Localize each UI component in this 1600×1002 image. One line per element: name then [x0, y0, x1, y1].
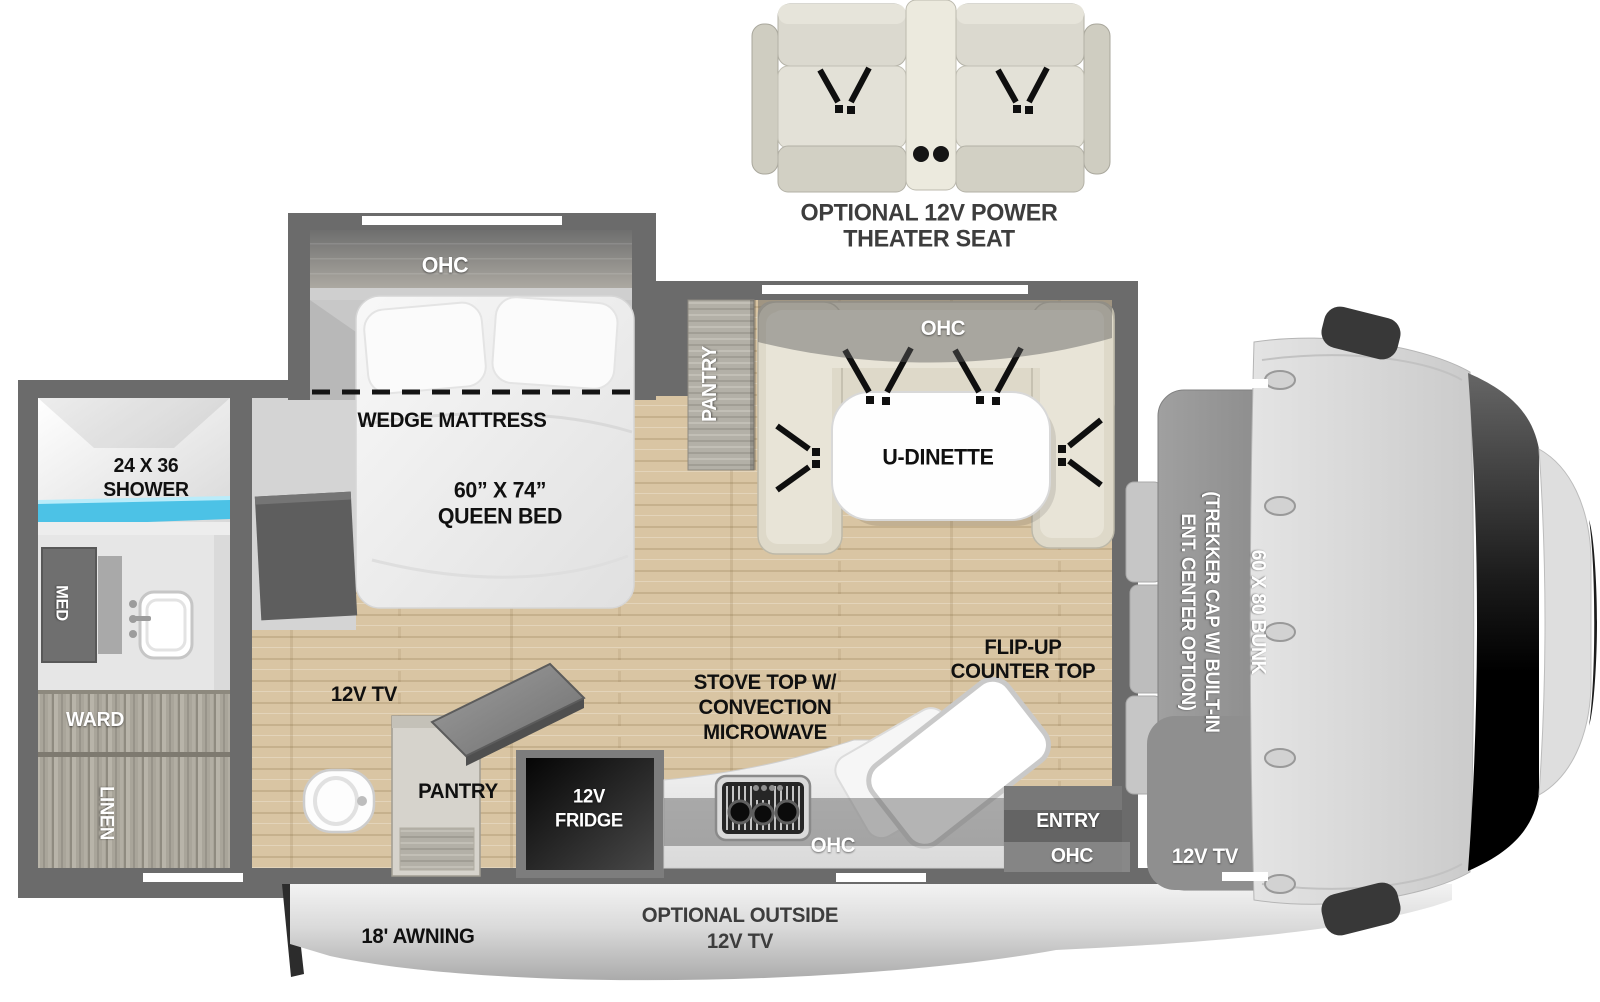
stove-label-line2: CONVECTION	[699, 696, 832, 720]
linen-label: LINEN	[95, 786, 116, 840]
bunk-label: 60 X 80 BUNK	[1247, 550, 1269, 675]
bedroom-dresser	[255, 492, 357, 621]
cab-hood	[1250, 338, 1474, 904]
cupholder-icon	[933, 146, 949, 162]
flip-up-counter-label-line1: FLIP-UP	[984, 636, 1061, 660]
trekker-cap-label: (TREKKER CAP W/ BUILT-IN ENT. CENTER OPT…	[1175, 491, 1223, 732]
stove-label-line1: STOVE TOP W/	[694, 671, 837, 695]
theater-seat-label-line2: THEATER SEAT	[843, 227, 1015, 254]
bedroom-ohc-cabinet	[310, 230, 632, 300]
awning-label: 18' AWNING	[361, 925, 474, 949]
u-dinette-label: U-DINETTE	[882, 446, 993, 471]
dinette-ohc-label: OHC	[921, 317, 965, 341]
outside-tv-label-line2: 12V TV	[707, 930, 773, 954]
pillow	[491, 296, 619, 390]
shower-label-line2: SHOWER	[103, 479, 189, 501]
dinette-pantry-label: PANTRY	[699, 346, 721, 422]
bedroom-tv-label: 12V TV	[331, 683, 397, 707]
dinette-window	[762, 285, 1028, 294]
bedroom-ohc-label: OHC	[422, 254, 469, 279]
queen-bed-label-line2: QUEEN BED	[438, 505, 562, 530]
kitchen-window	[836, 873, 926, 882]
stove-label-line3: MICROWAVE	[703, 721, 827, 745]
pillow	[363, 301, 488, 395]
rv-floorplan: OPTIONAL 12V POWER THEATER SEAT OHC WEDG…	[0, 0, 1600, 1002]
cupholder-icon	[913, 146, 929, 162]
bedroom-window	[362, 216, 562, 225]
shower-label-line1: 24 X 36	[114, 455, 179, 477]
entry-label: ENTRY	[1036, 810, 1100, 832]
trekker-cap-label-line2: ENT. CENTER OPTION)	[1175, 491, 1199, 732]
kitchen-ohc-label: OHC	[811, 834, 855, 858]
windshield	[1468, 373, 1539, 871]
trekker-cap-label-line1: (TREKKER CAP W/ BUILT-IN	[1199, 491, 1223, 732]
center-console	[906, 0, 956, 190]
stove-icon	[716, 776, 810, 840]
kitchen-pantry-label: PANTRY	[418, 780, 498, 804]
cab-tv-label: 12V TV	[1172, 845, 1238, 869]
outside-tv-label-line1: OPTIONAL OUTSIDE	[642, 904, 838, 928]
queen-bed	[356, 296, 634, 608]
med-label: MED	[52, 585, 71, 621]
queen-bed-label-line1: 60” X 74”	[454, 479, 546, 504]
wedge-mattress-label: WEDGE MATTRESS	[357, 409, 546, 433]
flip-up-counter-label-line2: COUNTER TOP	[951, 660, 1096, 684]
theater-seat	[752, 0, 1110, 192]
fridge-label-line2: FRIDGE	[555, 810, 623, 831]
toilet-icon	[304, 770, 374, 832]
entry-ohc-label: OHC	[1051, 845, 1093, 867]
ward-label: WARD	[66, 709, 124, 731]
bathroom-window	[143, 873, 243, 882]
front-fascia	[1539, 449, 1591, 795]
fridge-label-line1: 12V	[573, 786, 605, 807]
theater-seat-label-line1: OPTIONAL 12V POWER	[801, 201, 1058, 228]
